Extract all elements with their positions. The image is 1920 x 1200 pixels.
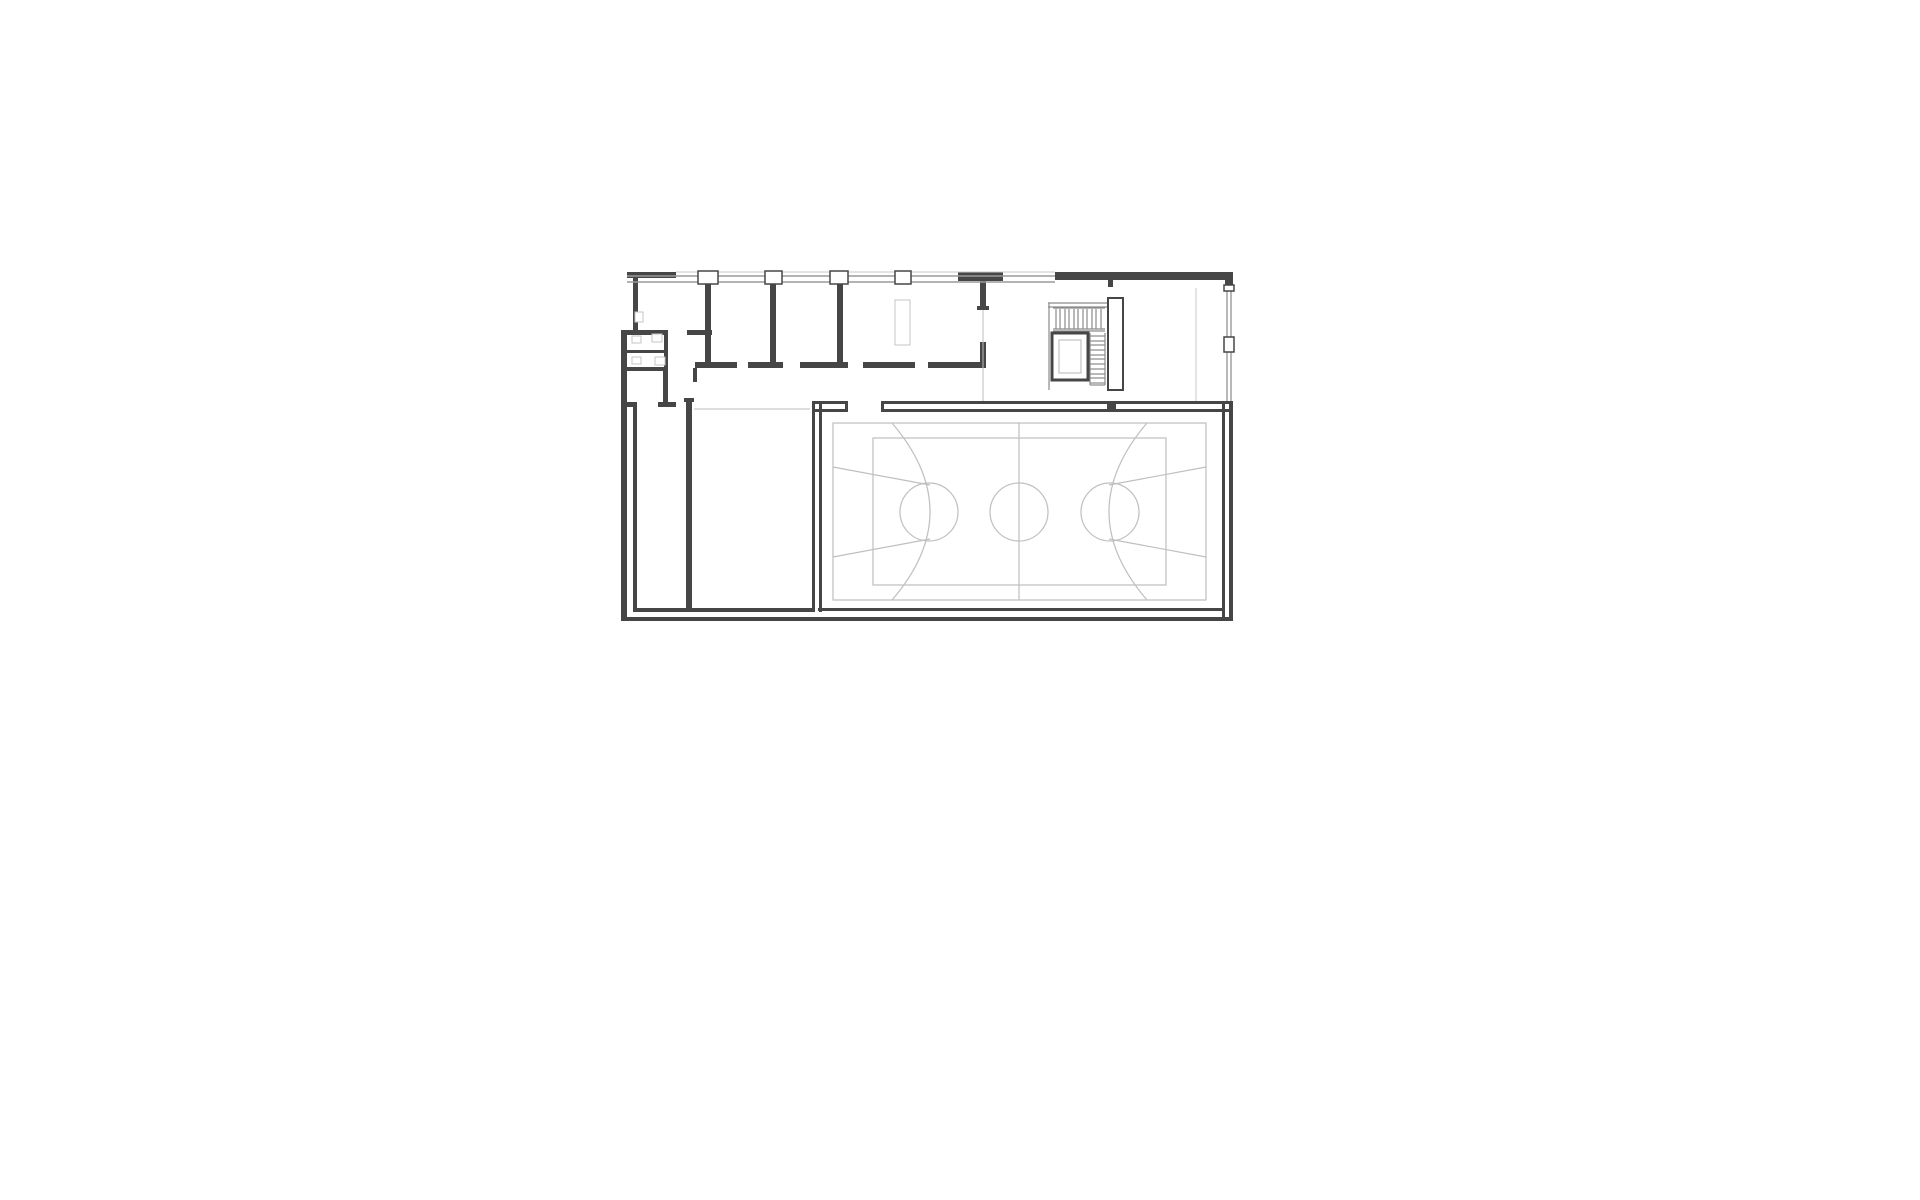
interior-walls-wall bbox=[633, 608, 812, 612]
basketball-court-circle bbox=[900, 483, 958, 541]
fixtures-outline bbox=[895, 300, 910, 345]
fixtures-outline bbox=[632, 336, 641, 343]
envelope-walls-wall bbox=[881, 401, 884, 412]
floor-plan-page bbox=[0, 0, 1920, 1200]
basketball-court-line bbox=[1109, 539, 1206, 557]
envelope-walls-wall bbox=[845, 401, 848, 412]
interior-walls-wall bbox=[705, 283, 711, 364]
interior-walls-wall bbox=[684, 398, 694, 402]
stair-pier bbox=[1108, 298, 1123, 390]
envelope-walls-wall bbox=[812, 404, 815, 612]
interior-walls-wall bbox=[863, 362, 915, 368]
basketball-court-line bbox=[833, 467, 930, 485]
interior-walls-wall bbox=[627, 350, 665, 353]
stair-pier-outline bbox=[1108, 298, 1123, 390]
fixtures-outline bbox=[652, 334, 662, 342]
interior-walls-wall bbox=[627, 402, 637, 407]
envelope-walls-wall bbox=[812, 409, 848, 412]
elevator-car bbox=[1059, 340, 1081, 373]
envelope-walls bbox=[621, 272, 1233, 621]
interior-walls-wall bbox=[693, 368, 697, 382]
facade-columns-outline bbox=[895, 271, 911, 284]
interior-walls-wall bbox=[770, 283, 776, 364]
envelope-walls-wall bbox=[1229, 401, 1233, 621]
interior-walls-wall bbox=[837, 283, 843, 364]
interior-walls-wall bbox=[748, 362, 783, 368]
envelope-walls-wall bbox=[627, 272, 676, 278]
envelope-walls-wall bbox=[1107, 401, 1116, 410]
fixtures-outline bbox=[635, 312, 643, 322]
interior-walls-wall bbox=[980, 281, 986, 310]
basketball-court-circle bbox=[1081, 483, 1139, 541]
interior-walls-wall bbox=[658, 402, 676, 407]
fixtures-outline bbox=[655, 357, 665, 365]
envelope-walls-wall bbox=[819, 404, 822, 612]
interior-walls-wall bbox=[977, 306, 989, 310]
interior-walls-wall bbox=[687, 330, 712, 335]
basketball-court-arc bbox=[892, 423, 930, 600]
interior-walls-wall bbox=[800, 362, 848, 368]
envelope-walls-wall bbox=[1222, 404, 1225, 617]
elevator-car-outline bbox=[1059, 340, 1081, 373]
facade-columns-outline bbox=[1224, 285, 1234, 291]
interior-walls-wall bbox=[663, 371, 668, 402]
basketball-court-line bbox=[833, 539, 930, 557]
basketball-court-arc bbox=[1109, 423, 1147, 600]
interior-walls bbox=[621, 281, 989, 612]
floor-plan-svg bbox=[0, 0, 1920, 1200]
facade-columns-outline bbox=[830, 271, 848, 284]
envelope-walls-wall bbox=[1055, 272, 1233, 280]
facade-columns-outline bbox=[698, 271, 718, 284]
envelope-walls-wall bbox=[884, 409, 1233, 412]
window-bands bbox=[627, 276, 1231, 401]
envelope-walls-wall bbox=[1108, 280, 1113, 287]
facade-columns-outline bbox=[1224, 337, 1234, 352]
envelope-walls-wall bbox=[818, 608, 1225, 611]
facade-columns bbox=[698, 271, 1234, 352]
interior-walls-wall bbox=[686, 398, 692, 612]
facade-columns-outline bbox=[765, 271, 782, 284]
interior-walls-wall bbox=[633, 407, 637, 612]
envelope-walls-wall bbox=[812, 401, 848, 404]
interior-walls-wall bbox=[928, 362, 986, 368]
interior-walls-wall bbox=[621, 367, 668, 371]
interior-walls-wall bbox=[695, 362, 737, 368]
envelope-walls-wall bbox=[622, 617, 1233, 621]
envelope-walls-wall bbox=[621, 330, 627, 621]
basketball-court-line bbox=[1109, 467, 1206, 485]
fixtures-outline bbox=[632, 357, 641, 364]
basketball-court bbox=[833, 423, 1206, 600]
envelope-walls-wall bbox=[884, 401, 1233, 404]
